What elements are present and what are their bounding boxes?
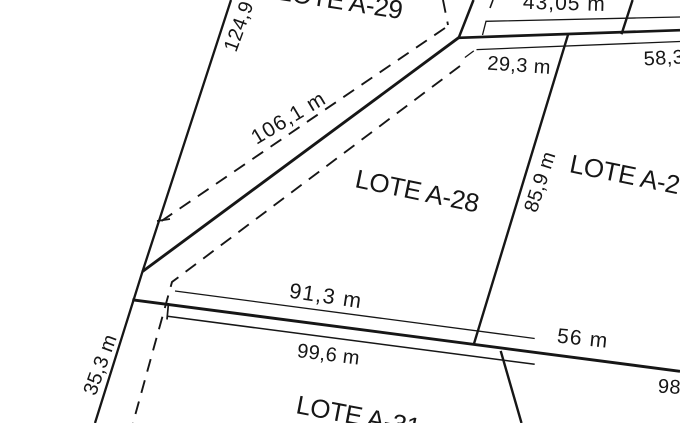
- svg-text:58,3: 58,3: [643, 46, 680, 70]
- svg-text:98,: 98,: [657, 376, 680, 400]
- svg-text:29,3 m: 29,3 m: [487, 53, 552, 79]
- svg-text:43,05 m: 43,05 m: [523, 0, 606, 16]
